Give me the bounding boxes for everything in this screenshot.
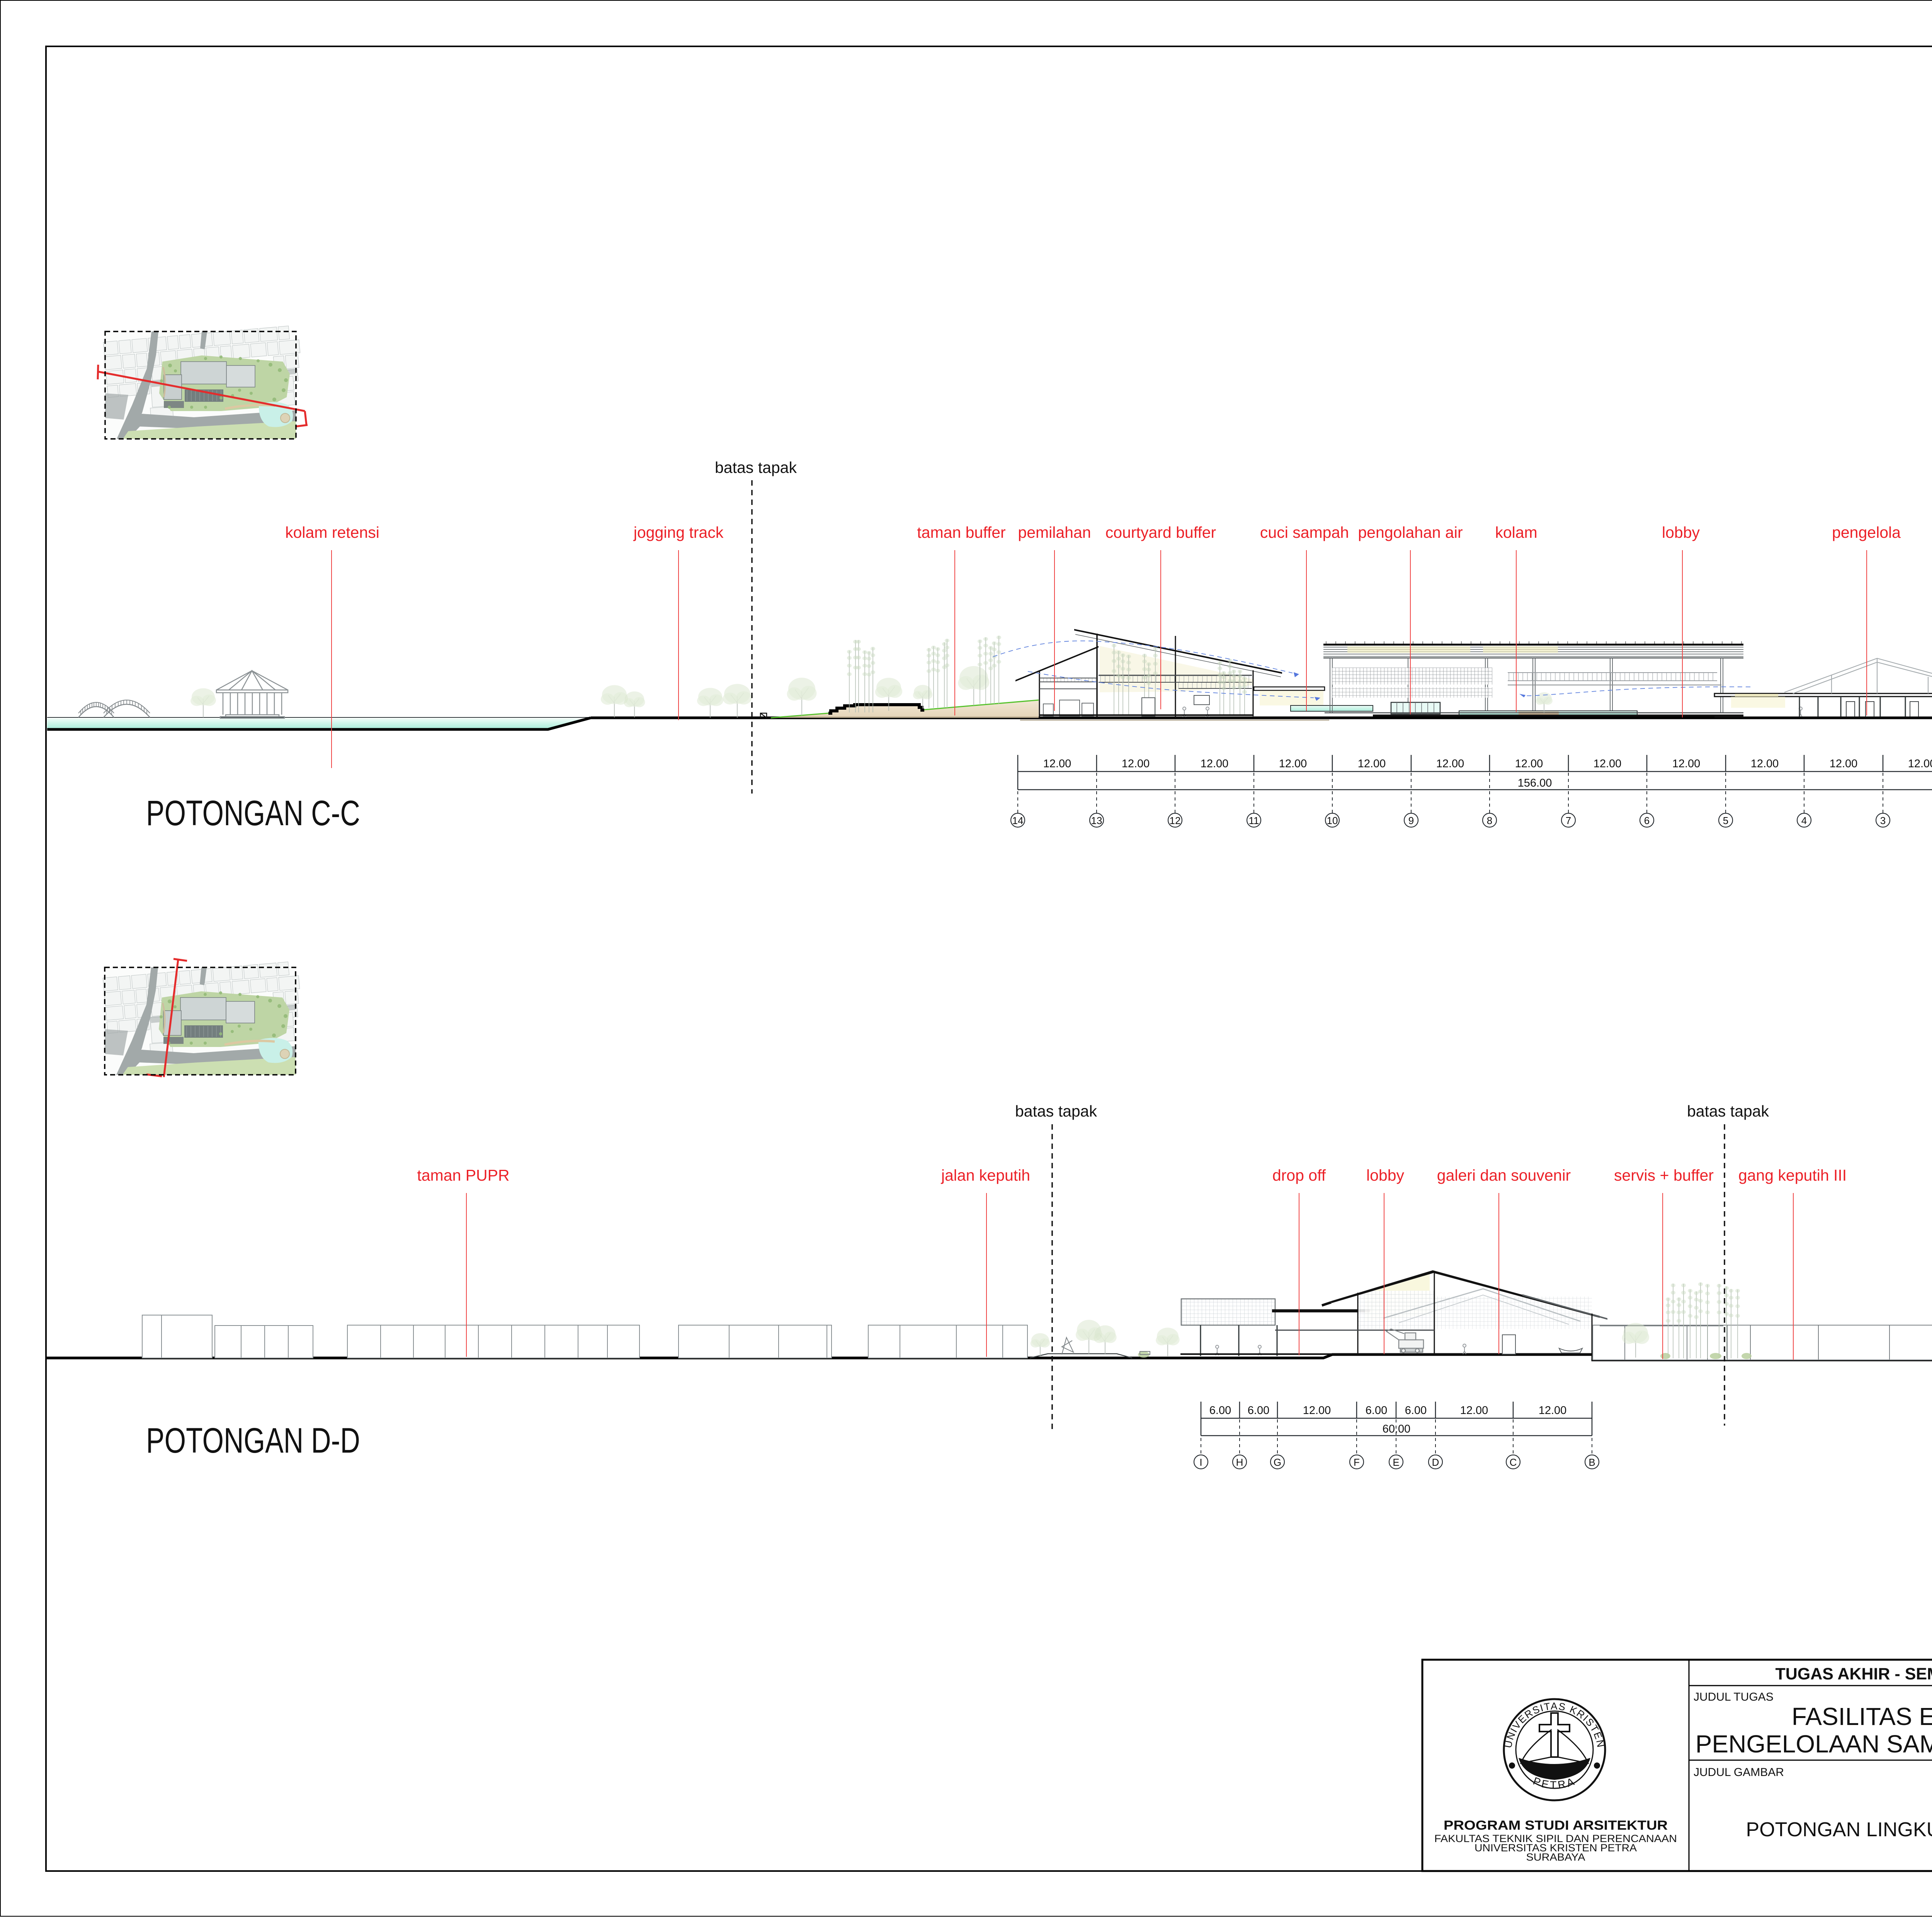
svg-text:galeri dan souvenir: galeri dan souvenir — [1437, 1166, 1571, 1184]
svg-text:kolam retensi: kolam retensi — [285, 523, 379, 541]
svg-text:batas tapak: batas tapak — [1015, 1102, 1097, 1120]
svg-text:JUDUL TUGAS: JUDUL TUGAS — [1694, 1691, 1774, 1703]
svg-text:12.00: 12.00 — [1830, 758, 1858, 770]
svg-text:6.00: 6.00 — [1209, 1404, 1231, 1417]
svg-text:6.00: 6.00 — [1248, 1404, 1269, 1417]
svg-text:12.00: 12.00 — [1908, 758, 1932, 770]
svg-text:C: C — [1510, 1456, 1517, 1468]
svg-text:12.00: 12.00 — [1515, 758, 1543, 770]
svg-text:12.00: 12.00 — [1460, 1404, 1488, 1417]
svg-text:12.00: 12.00 — [1358, 758, 1386, 770]
svg-text:12.00: 12.00 — [1122, 758, 1150, 770]
svg-text:jalan keputih: jalan keputih — [941, 1166, 1030, 1184]
svg-text:POTONGAN D-D: POTONGAN D-D — [146, 1421, 360, 1460]
svg-text:9: 9 — [1408, 815, 1414, 826]
svg-text:cuci sampah: cuci sampah — [1260, 523, 1349, 541]
svg-text:JUDUL GAMBAR: JUDUL GAMBAR — [1694, 1766, 1784, 1779]
svg-text:11: 11 — [1249, 815, 1259, 826]
svg-text:7: 7 — [1566, 815, 1571, 826]
svg-text:6.00: 6.00 — [1366, 1404, 1387, 1417]
svg-text:SURABAYA: SURABAYA — [1526, 1851, 1585, 1863]
svg-text:5: 5 — [1723, 815, 1728, 826]
svg-text:gang keputih III: gang keputih III — [1738, 1166, 1847, 1184]
svg-text:FASILITAS EDUWISATA: FASILITAS EDUWISATA — [1792, 1703, 1932, 1730]
svg-text:drop off: drop off — [1272, 1166, 1326, 1184]
svg-text:PENGELOLAAN SAMPAH DI SURABAYA: PENGELOLAAN SAMPAH DI SURABAYA — [1696, 1730, 1932, 1758]
svg-text:12.00: 12.00 — [1279, 758, 1307, 770]
svg-text:POTONGAN C-C: POTONGAN C-C — [146, 794, 360, 833]
svg-text:D: D — [1432, 1456, 1439, 1468]
svg-text:156.00: 156.00 — [1518, 777, 1552, 789]
svg-text:4: 4 — [1801, 815, 1807, 826]
svg-text:12.00: 12.00 — [1201, 758, 1229, 770]
svg-text:kolam: kolam — [1495, 523, 1537, 541]
svg-text:lobby: lobby — [1366, 1166, 1405, 1184]
svg-text:taman PUPR: taman PUPR — [417, 1166, 509, 1184]
svg-text:POTONGAN LINGKUNGAN: POTONGAN LINGKUNGAN — [1746, 1818, 1932, 1841]
svg-text:8: 8 — [1487, 815, 1492, 826]
svg-text:3: 3 — [1880, 815, 1886, 826]
svg-text:E: E — [1393, 1456, 1399, 1468]
svg-text:12.00: 12.00 — [1594, 758, 1622, 770]
svg-text:12.00: 12.00 — [1672, 758, 1701, 770]
svg-text:6: 6 — [1644, 815, 1650, 826]
svg-text:12: 12 — [1170, 815, 1181, 826]
svg-text:batas tapak: batas tapak — [715, 459, 797, 476]
svg-text:12.00: 12.00 — [1043, 758, 1071, 770]
svg-text:13: 13 — [1091, 815, 1102, 826]
svg-text:I: I — [1199, 1456, 1202, 1468]
svg-text:12.00: 12.00 — [1303, 1404, 1331, 1417]
svg-text:jogging track: jogging track — [633, 523, 724, 541]
svg-text:G: G — [1274, 1456, 1281, 1468]
svg-text:14: 14 — [1012, 815, 1024, 826]
svg-text:lobby: lobby — [1662, 523, 1700, 541]
svg-text:TUGAS AKHIR - SEMESTER GENAP 2: TUGAS AKHIR - SEMESTER GENAP 2023/2024 — [1775, 1665, 1932, 1683]
svg-text:H: H — [1236, 1456, 1243, 1468]
svg-text:pengolahan air: pengolahan air — [1358, 523, 1463, 541]
svg-text:servis + buffer: servis + buffer — [1614, 1166, 1714, 1184]
svg-text:12.00: 12.00 — [1751, 758, 1779, 770]
svg-text:12.00: 12.00 — [1436, 758, 1464, 770]
svg-text:pemilahan: pemilahan — [1018, 523, 1091, 541]
svg-text:taman buffer: taman buffer — [917, 523, 1005, 541]
svg-text:B: B — [1588, 1456, 1595, 1468]
svg-text:batas tapak: batas tapak — [1687, 1102, 1769, 1120]
svg-text:courtyard buffer: courtyard buffer — [1105, 523, 1216, 541]
svg-text:pengelola: pengelola — [1832, 523, 1901, 541]
svg-text:F: F — [1354, 1456, 1360, 1468]
svg-text:PROGRAM STUDI ARSITEKTUR: PROGRAM STUDI ARSITEKTUR — [1444, 1818, 1668, 1833]
svg-text:10: 10 — [1327, 815, 1338, 826]
svg-text:12.00: 12.00 — [1539, 1404, 1567, 1417]
svg-text:60.00: 60.00 — [1383, 1423, 1411, 1435]
svg-text:6.00: 6.00 — [1405, 1404, 1427, 1417]
